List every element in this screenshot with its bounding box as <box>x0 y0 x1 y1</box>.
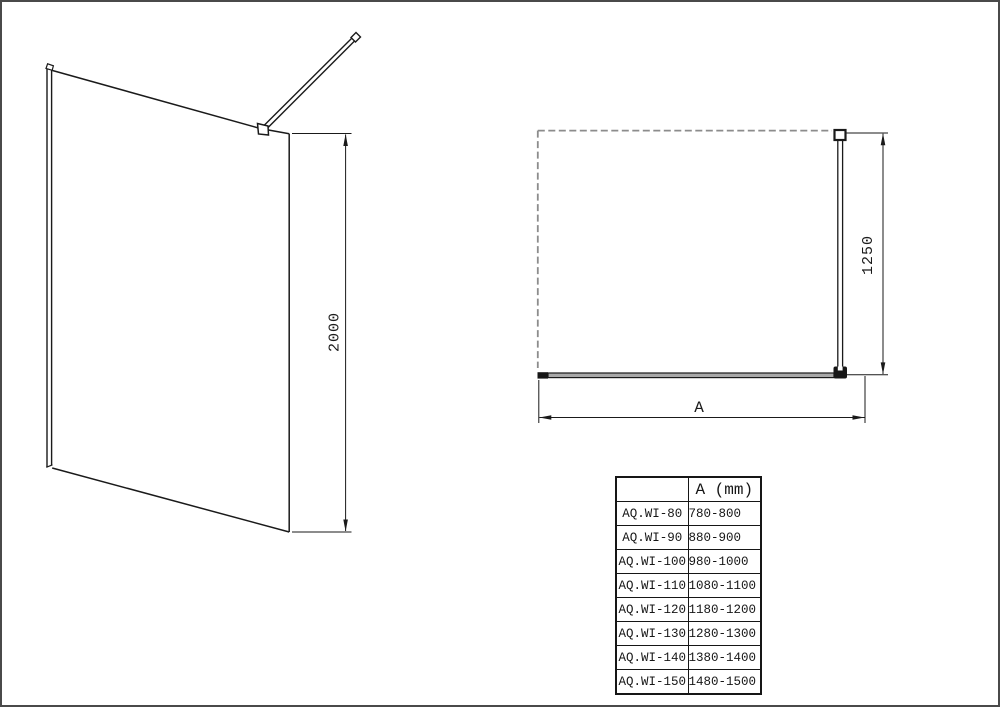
table-cell-model: AQ.WI-100 <box>616 550 688 574</box>
table-row: AQ.WI-80 780-800 <box>616 502 761 526</box>
height-dimension-label: 2000 <box>327 312 344 352</box>
table-cell-range: 980-1000 <box>688 550 761 574</box>
table-cell-model: AQ.WI-80 <box>616 502 688 526</box>
depth-dimension-label: 1250 <box>860 235 877 275</box>
arrowhead-up <box>343 134 348 146</box>
plan-view: 1250 A <box>538 130 889 423</box>
wall-profile-plan <box>538 372 549 378</box>
arrowhead-left <box>539 415 551 420</box>
table-row: AQ.WI-90 880-900 <box>616 526 761 550</box>
table-row: AQ.WI-100 980-1000 <box>616 550 761 574</box>
table-row: AQ.WI-110 1080-1100 <box>616 574 761 598</box>
support-bar-end-cap <box>351 33 361 43</box>
table-row: AQ.WI-140 1380-1400 <box>616 646 761 670</box>
support-bar-wall-cap <box>835 130 846 140</box>
table-cell-model: AQ.WI-150 <box>616 670 688 695</box>
table-cell-model: AQ.WI-130 <box>616 622 688 646</box>
technical-drawing: 2000 <box>2 2 1000 707</box>
wall-profile <box>46 64 53 468</box>
size-table: A (mm) AQ.WI-80 780-800 AQ.WI-90 880-900… <box>615 476 762 695</box>
table-cell-model: AQ.WI-120 <box>616 598 688 622</box>
table-cell-model: AQ.WI-90 <box>616 526 688 550</box>
width-dimension: A <box>539 376 865 423</box>
arrowhead-right <box>853 415 865 420</box>
perspective-view: 2000 <box>46 33 361 533</box>
table-cell-model: AQ.WI-110 <box>616 574 688 598</box>
size-table-header-row: A (mm) <box>616 477 761 502</box>
width-dimension-label: A <box>694 399 704 417</box>
support-bar <box>258 33 361 136</box>
table-row: AQ.WI-150 1480-1500 <box>616 670 761 695</box>
arrowhead-up <box>881 133 886 145</box>
drawing-page: 2000 <box>0 0 1000 707</box>
arrowhead-down <box>343 520 348 532</box>
table-row: AQ.WI-120 1180-1200 <box>616 598 761 622</box>
glass-panel-plan <box>538 372 835 378</box>
arrowhead-down <box>881 362 886 374</box>
table-cell-range: 1280-1300 <box>688 622 761 646</box>
wall-profile-top-cap <box>46 64 53 71</box>
shower-area-dashed-outline <box>538 131 832 368</box>
glass-clamp <box>258 124 269 136</box>
table-cell-range: 1180-1200 <box>688 598 761 622</box>
table-cell-range: 1480-1500 <box>688 670 761 695</box>
table-cell-range: 1080-1100 <box>688 574 761 598</box>
height-dimension: 2000 <box>292 134 352 533</box>
header-model <box>616 477 688 502</box>
table-cell-range: 880-900 <box>688 526 761 550</box>
table-cell-model: AQ.WI-140 <box>616 646 688 670</box>
support-bar-plan <box>834 130 848 379</box>
support-bar-clamp-slot <box>838 367 843 371</box>
header-a-mm: A (mm) <box>688 477 761 502</box>
table-cell-range: 780-800 <box>688 502 761 526</box>
table-cell-range: 1380-1400 <box>688 646 761 670</box>
depth-dimension: 1250 <box>846 133 888 375</box>
table-row: AQ.WI-130 1280-1300 <box>616 622 761 646</box>
glass-panel <box>52 71 289 533</box>
